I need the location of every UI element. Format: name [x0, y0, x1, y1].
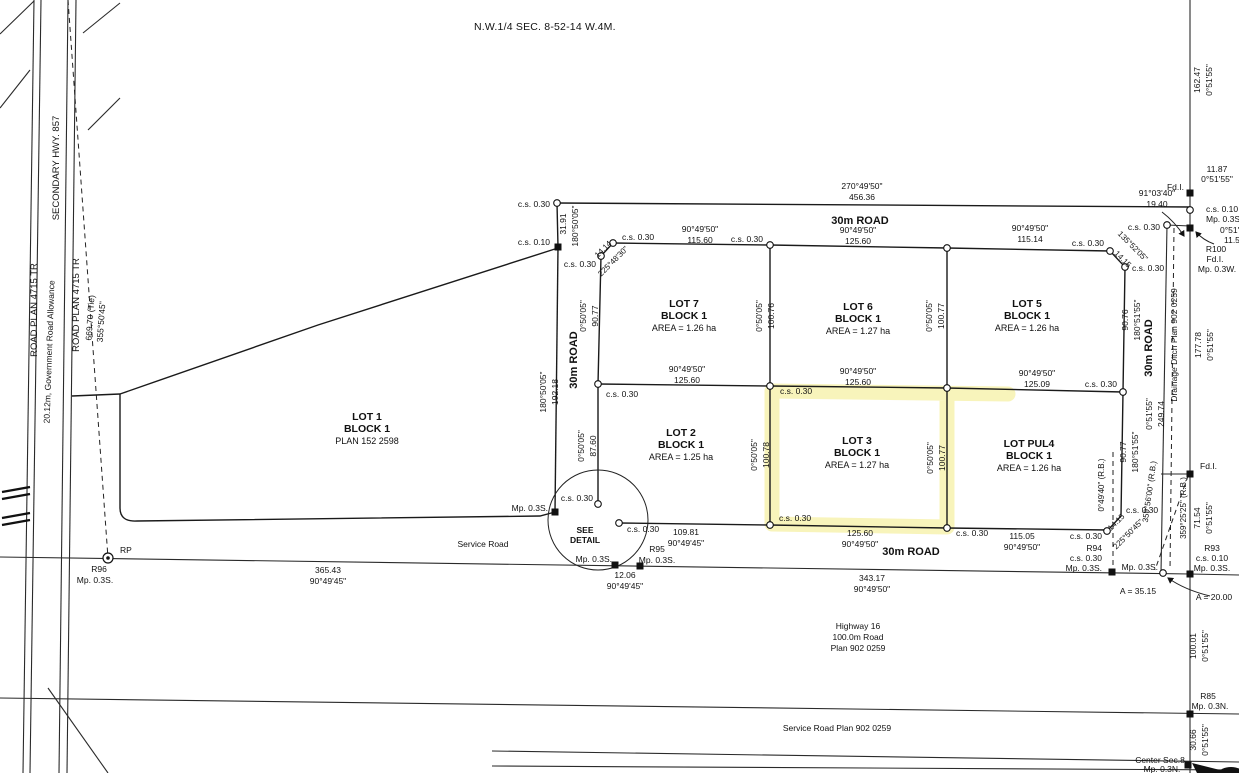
- map-label: 12.06: [614, 570, 636, 580]
- monument-circle-marker: [1164, 222, 1171, 229]
- map-label: R93: [1204, 543, 1220, 553]
- monument-circle-marker: [1160, 570, 1167, 577]
- map-label: R94: [1086, 543, 1102, 553]
- map-label: 100.77: [936, 303, 946, 329]
- monument-square-marker: [552, 509, 559, 516]
- map-label: 180°50'05": [570, 205, 580, 246]
- monument-square-marker: [1185, 762, 1192, 769]
- map-label: 90°49'50": [669, 364, 705, 374]
- map-label: 365.43: [315, 565, 341, 575]
- map-label: Mp. 0.3S.: [77, 575, 113, 585]
- map-label: Drainage Ditch Plan 902 0259: [1169, 288, 1179, 402]
- map-label: ROAD PLAN 4715 TR: [29, 263, 40, 357]
- monument-circle-marker: [767, 242, 774, 249]
- map-label: 71.54: [1192, 507, 1202, 529]
- map-label: 125.60: [674, 375, 700, 385]
- map-label: Mp. 0.3S.: [576, 554, 612, 564]
- map-label: 162.47: [1192, 67, 1202, 93]
- map-label: 0°50'05": [754, 300, 764, 332]
- map-label: 90°49'50": [840, 366, 876, 376]
- map-label: AREA = 1.26 ha: [997, 463, 1061, 473]
- map-label: Mp. 0.3S.: [1194, 563, 1230, 573]
- map-label: BLOCK 1: [661, 310, 707, 322]
- map-label: AREA = 1.27 ha: [826, 326, 890, 336]
- monument-square-marker: [1187, 471, 1194, 478]
- map-label: c.s. 0.30: [1128, 222, 1160, 232]
- map-label: Mp. 0.3S.: [512, 503, 548, 513]
- map-label: c.s. 0.30: [956, 528, 988, 538]
- map-label: LOT 2: [666, 427, 696, 439]
- monument-circle-marker: [944, 245, 951, 252]
- map-label: 115.60: [687, 235, 713, 245]
- survey-plat-page: N.W.1/4 SEC. 8-52-14 W.4M.: [0, 0, 1239, 773]
- map-label: Plan 902 0259: [831, 643, 886, 653]
- map-label: c.s. 0.30: [779, 513, 811, 523]
- map-label: 125.09: [1024, 379, 1050, 389]
- map-label: SECONDARY HWY. 857: [51, 116, 62, 221]
- map-label: c.s. 0.30: [1085, 379, 1117, 389]
- map-label: 249.74: [1156, 401, 1166, 427]
- map-label: Highway 16: [836, 621, 881, 631]
- map-label: R96: [91, 564, 107, 574]
- rp-monument-marker: [103, 553, 113, 563]
- map-label: A = 20.00: [1196, 592, 1232, 602]
- map-label: 90°49'50": [840, 225, 876, 235]
- map-label: Service Road Plan 902 0259: [783, 723, 891, 733]
- map-label: A = 35.15: [1120, 586, 1156, 596]
- map-label: c.s. 0.30: [622, 232, 654, 242]
- map-label: 100.01: [1188, 633, 1198, 659]
- map-label: Mp. 0.3S.: [1122, 562, 1158, 572]
- map-label: c.s. 0.10: [518, 237, 550, 247]
- map-label: 0°50'05": [576, 430, 586, 462]
- monument-circle-marker: [595, 501, 602, 508]
- map-label: Fd.I.: [1167, 182, 1184, 192]
- survey-labels: ROAD PLAN 4715 TRSECONDARY HWY. 85720.12…: [29, 64, 1239, 773]
- monument-circle-marker: [1107, 248, 1114, 255]
- map-label: 270°49'50": [841, 181, 882, 191]
- map-label: 90°49'50": [1004, 542, 1040, 552]
- map-label: LOT PUL4: [1004, 438, 1055, 450]
- map-label: DETAIL: [570, 535, 600, 545]
- lot3-highlight: [772, 391, 1008, 527]
- map-label: 456.36: [849, 192, 875, 202]
- map-label: c.s. 0.30: [564, 259, 596, 269]
- map-label: BLOCK 1: [835, 313, 881, 325]
- map-label: 20.12m, Government Road Allowance: [42, 280, 57, 424]
- map-label: 355°50'45": [95, 301, 108, 343]
- map-label: 87.60: [588, 435, 598, 457]
- monument-square-marker: [1109, 569, 1116, 576]
- map-label: 90°49'45": [607, 581, 643, 591]
- map-label: 0°50'05": [924, 300, 934, 332]
- map-label: 90°49'50": [682, 224, 718, 234]
- map-label: 0°50'05": [925, 442, 935, 474]
- map-label: 90°49'50": [842, 539, 878, 549]
- map-label: 180°51'55": [1130, 431, 1140, 472]
- highway16-lines: [0, 698, 1239, 770]
- map-label: 192.18: [550, 379, 560, 405]
- map-label: 115.05: [1009, 531, 1035, 541]
- monument-circle-marker: [616, 520, 623, 527]
- monument-square-marker: [555, 244, 562, 251]
- map-label: Mp. 0.3S.: [1206, 214, 1239, 224]
- map-label: PLAN 152 2598: [335, 436, 399, 446]
- map-label: 359°25'25" (R.B.): [1179, 477, 1188, 539]
- map-label: Mp. 0.3S.: [639, 555, 675, 565]
- map-label: LOT 3: [842, 435, 872, 447]
- map-label: R100: [1206, 244, 1227, 254]
- map-label: 0°51'55": [1205, 329, 1215, 361]
- map-label: 90.76: [1120, 309, 1130, 331]
- monument-circle-marker: [944, 385, 951, 392]
- map-label: 0°51'55": [1220, 225, 1239, 235]
- map-label: 109.81: [673, 527, 699, 537]
- map-label: 125.60: [845, 236, 871, 246]
- map-label: RP: [120, 545, 132, 555]
- map-label: 11.87: [1207, 164, 1228, 174]
- map-label: 0°51'55": [1204, 502, 1214, 534]
- map-label: BLOCK 1: [834, 447, 880, 459]
- map-label: c.s. 0.30: [1070, 553, 1102, 563]
- monument-circle-marker: [944, 525, 951, 532]
- map-label: 100.78: [761, 442, 771, 468]
- map-label: c.s. 0.30: [606, 389, 638, 399]
- map-label: 0°51'55": [1201, 174, 1233, 184]
- map-label: 0°51'55": [1200, 724, 1210, 756]
- map-label: 177.78: [1193, 332, 1203, 358]
- map-label: BLOCK 1: [1004, 310, 1050, 322]
- map-label: 30m ROAD: [568, 331, 580, 389]
- map-label: LOT 6: [843, 301, 873, 313]
- map-label: c.s. 0.10: [1206, 204, 1238, 214]
- monument-square-marker: [1187, 711, 1194, 718]
- map-label: Mp. 0.3S.: [1066, 563, 1102, 573]
- map-label: c.s. 0.30: [1072, 238, 1104, 248]
- map-label: LOT 5: [1012, 298, 1042, 310]
- map-label: 0°51'55": [1200, 630, 1210, 662]
- map-label: 125.60: [847, 528, 873, 538]
- map-label: 343.17: [859, 573, 885, 583]
- map-label: LOT 1: [352, 411, 382, 423]
- map-label: R85: [1200, 691, 1216, 701]
- map-label: 90°49'50": [854, 584, 890, 594]
- map-label: c.s. 0.30: [1070, 531, 1102, 541]
- map-label: SEE: [576, 525, 593, 535]
- map-label: BLOCK 1: [1006, 450, 1052, 462]
- monument-square-marker: [1187, 225, 1194, 232]
- map-label: 180°51'55": [1132, 299, 1142, 340]
- north-arrow: [1192, 763, 1239, 773]
- map-label: LOT 7: [669, 298, 699, 310]
- map-label: 19.40: [1146, 199, 1168, 209]
- map-label: 0°51'55": [1144, 398, 1154, 430]
- map-label: c.s. 0.10: [1196, 553, 1228, 563]
- map-label: Service Road: [457, 539, 508, 549]
- map-label: Mp. 0.3N.: [1192, 701, 1229, 711]
- map-label: 0°50'05": [749, 439, 759, 471]
- map-label: 90°49'45": [668, 538, 704, 548]
- monument-circle-marker: [1187, 207, 1194, 214]
- map-label: 0°50'05": [578, 300, 588, 332]
- map-label: c.s. 0.30: [731, 234, 763, 244]
- culvert-ticks: [2, 487, 30, 525]
- map-label: 14.15: [1106, 512, 1127, 533]
- map-label: Fd.I.: [1206, 254, 1223, 264]
- map-label: ROAD PLAN 4715 TR: [71, 258, 82, 352]
- map-label: 30m ROAD: [882, 546, 940, 558]
- map-label: 125.60: [845, 377, 871, 387]
- monument-circle-marker: [767, 383, 774, 390]
- map-label: 31.91: [558, 213, 568, 235]
- map-label: c.s. 0.30: [627, 524, 659, 534]
- monument-circle-marker: [595, 381, 602, 388]
- map-label: 30m ROAD: [1143, 319, 1155, 377]
- map-label: c.s. 0.30: [1132, 263, 1164, 273]
- map-label: 90.77: [590, 305, 600, 327]
- map-label: 90°49'50": [1019, 368, 1055, 378]
- monument-square-marker: [612, 562, 619, 569]
- map-label: 100.77: [937, 445, 947, 471]
- map-label: Fd.I.: [1200, 461, 1217, 471]
- monument-circle-marker: [554, 200, 561, 207]
- map-label: BLOCK 1: [658, 439, 704, 451]
- monument-square-marker: [1187, 571, 1194, 578]
- map-label: 90°49'50": [1012, 223, 1048, 233]
- map-label: c.s. 0.30: [780, 386, 812, 396]
- map-label: 0°49'40" (R.B.): [1097, 458, 1106, 511]
- map-label: 11.55: [1224, 235, 1239, 245]
- map-label: 90.77: [1118, 441, 1128, 463]
- monument-circle-marker: [1120, 389, 1127, 396]
- map-label: R95: [649, 544, 665, 554]
- map-label: AREA = 1.27 ha: [825, 460, 889, 470]
- map-label: c.s. 0.30: [518, 199, 550, 209]
- map-label: 30.66: [1188, 729, 1198, 751]
- map-label: BLOCK 1: [344, 423, 390, 435]
- map-label: c.s. 0.30: [1126, 505, 1158, 515]
- map-label: AREA = 1.25 ha: [649, 452, 713, 462]
- survey-monuments: [103, 190, 1194, 769]
- map-label: 90°49'45": [310, 576, 346, 586]
- map-label: 115.14: [1017, 234, 1043, 244]
- monument-circle-marker: [767, 522, 774, 529]
- map-label: 100.76: [766, 303, 776, 329]
- map-label: c.s. 0.30: [561, 493, 593, 503]
- map-label: AREA = 1.26 ha: [652, 323, 716, 333]
- map-label: Mp. 0.3W.: [1198, 264, 1236, 274]
- map-label: 180°50'05": [538, 371, 548, 412]
- map-label: 0°51'55": [1204, 64, 1214, 96]
- map-label: 100.0m Road: [832, 632, 883, 642]
- monument-square-marker: [1187, 190, 1194, 197]
- map-label: AREA = 1.26 ha: [995, 323, 1059, 333]
- map-label: Mp. 0.3N.: [1144, 764, 1181, 773]
- survey-plat-drawing: ROAD PLAN 4715 TRSECONDARY HWY. 85720.12…: [0, 0, 1239, 773]
